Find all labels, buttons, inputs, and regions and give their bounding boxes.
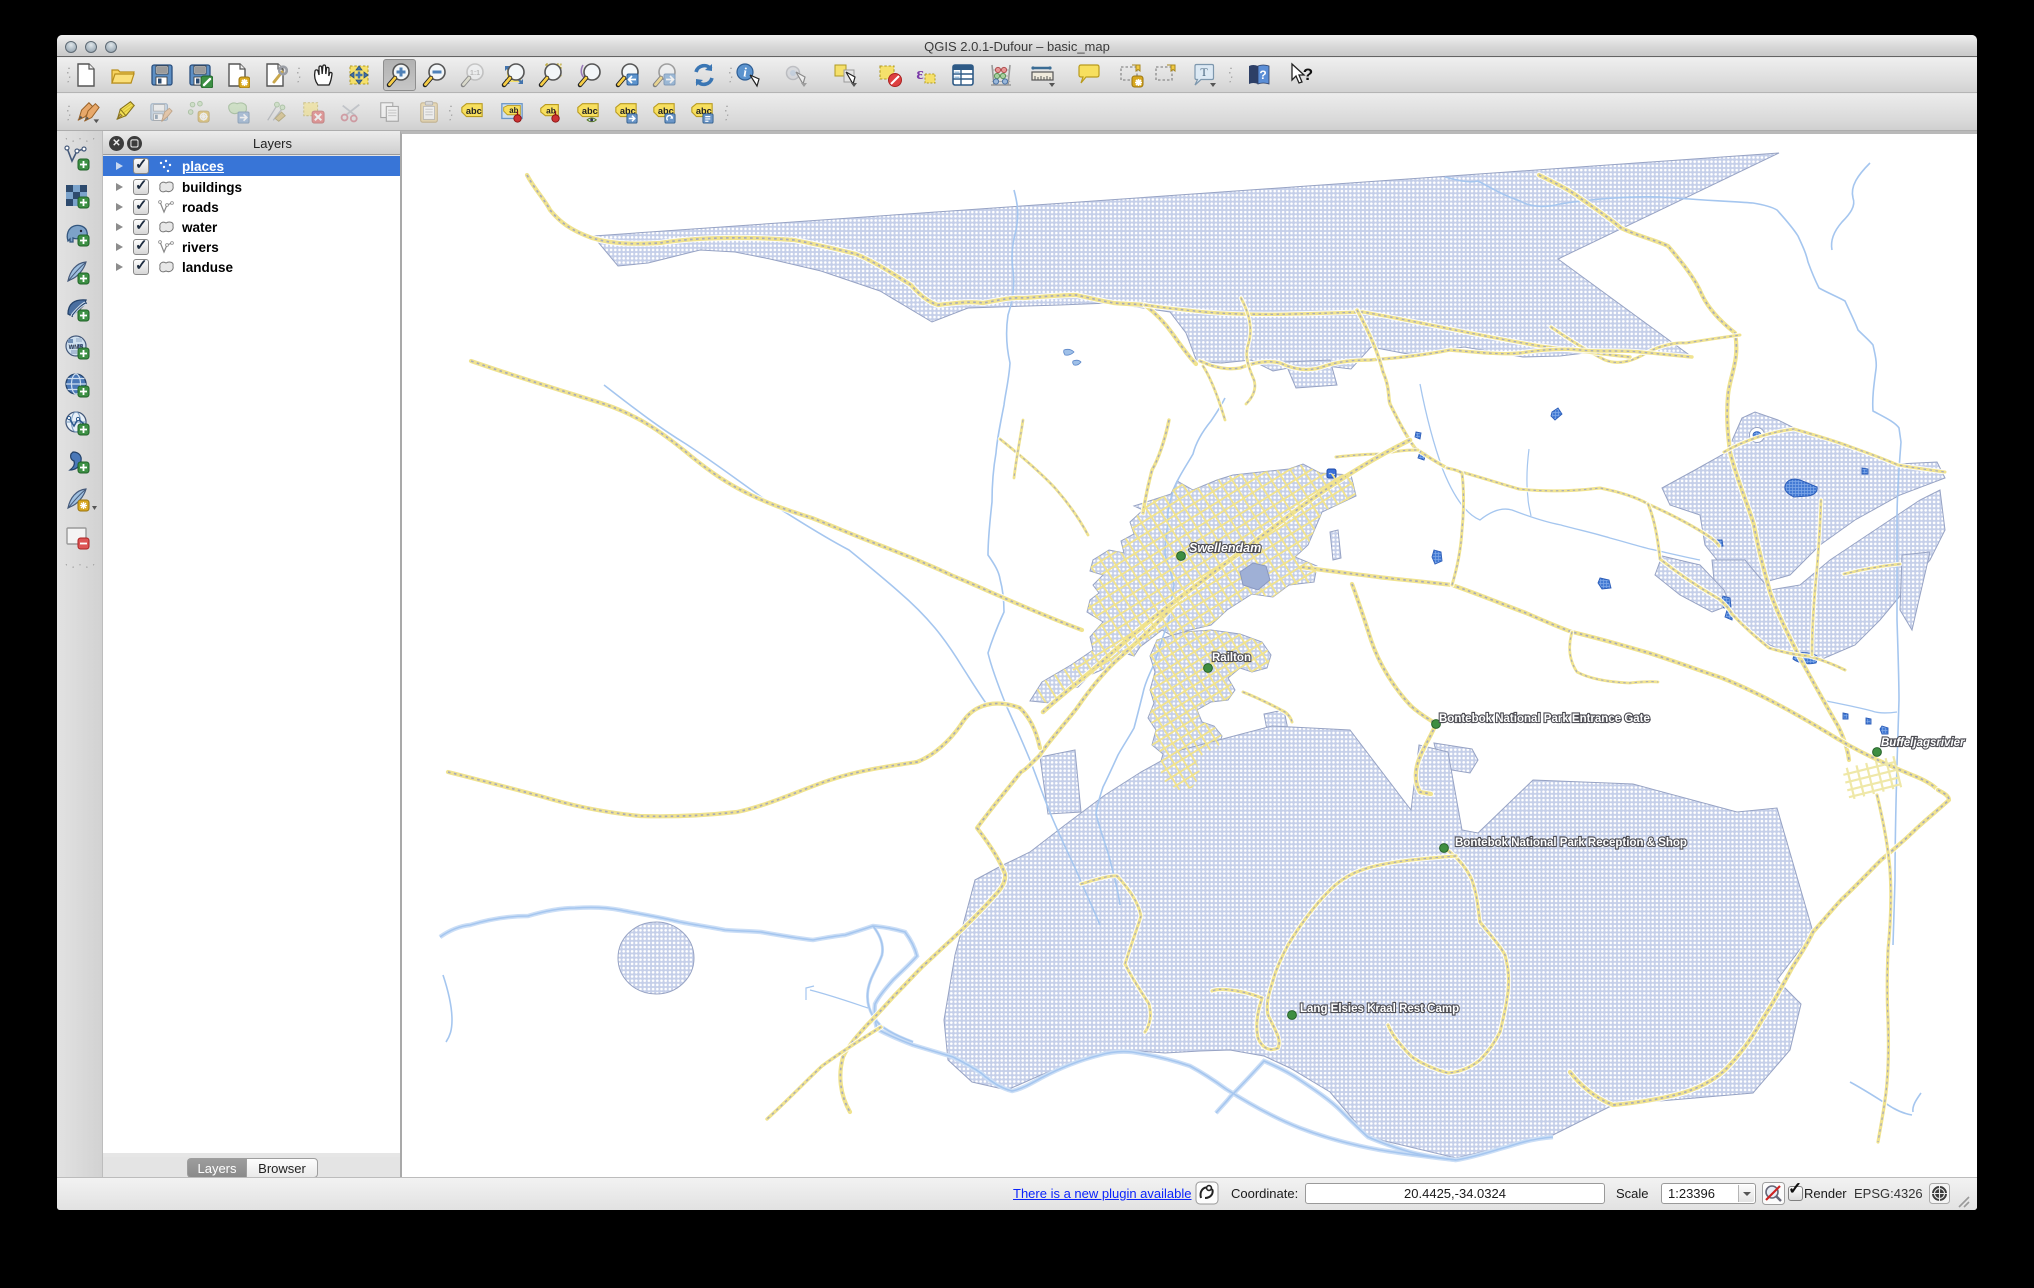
svg-text:Lang Elsies Kraal Rest Camp: Lang Elsies Kraal Rest Camp xyxy=(1300,1003,1459,1015)
svg-text:?: ? xyxy=(1259,68,1266,82)
svg-text:T: T xyxy=(1200,65,1208,79)
svg-text:Buffeljagsrivier: Buffeljagsrivier xyxy=(1881,737,1965,749)
svg-text:Swellendam: Swellendam xyxy=(1189,541,1261,555)
svg-text:ε: ε xyxy=(916,64,923,83)
svg-text:abc: abc xyxy=(582,106,598,116)
svg-text:abc: abc xyxy=(466,106,482,116)
svg-text:ab: ab xyxy=(546,105,556,115)
svg-text:?: ? xyxy=(1303,65,1313,84)
svg-text:Bontebok National Park Recepti: Bontebok National Park Reception & Shop xyxy=(1455,837,1687,849)
svg-text:1:1: 1:1 xyxy=(470,70,480,77)
svg-text:Railton: Railton xyxy=(1212,652,1251,664)
svg-text:Bontebok National Park Entranc: Bontebok National Park Entrance Gate xyxy=(1439,713,1650,725)
svg-text:i: i xyxy=(743,65,747,80)
